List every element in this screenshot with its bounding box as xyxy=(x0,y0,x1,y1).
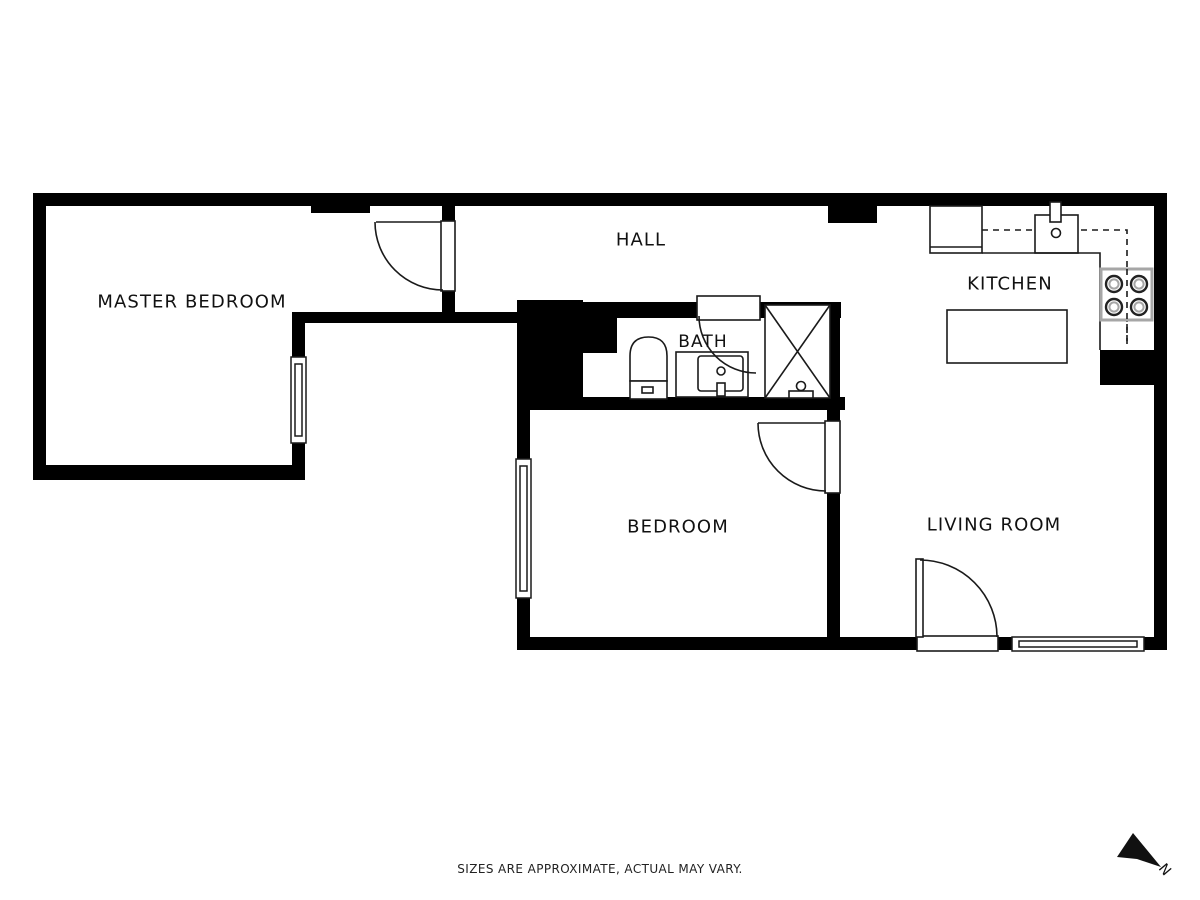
kitchen-island-icon xyxy=(947,310,1067,363)
wall-kitchen-living-block xyxy=(1100,350,1154,385)
room-label-living-room: LIVING ROOM xyxy=(927,515,1062,536)
shower-valve-bar xyxy=(789,391,813,398)
wall-pier-top-left xyxy=(311,193,370,213)
wall-top xyxy=(33,193,1167,206)
wall-lightwell-top xyxy=(292,312,517,323)
master-bedroom-door xyxy=(375,221,455,291)
wall-pier-hall-kitchen xyxy=(828,193,877,223)
bath-sink-handle xyxy=(717,383,725,396)
kitchen-faucet-icon xyxy=(1050,202,1061,222)
room-label-kitchen: KITCHEN xyxy=(967,274,1053,295)
door-jamb xyxy=(917,636,998,651)
fridge-icon xyxy=(930,206,982,253)
doors xyxy=(375,221,998,651)
door-swing-arc xyxy=(920,560,997,637)
room-label-master-bedroom: MASTER BEDROOM xyxy=(97,292,286,313)
door-jamb xyxy=(697,296,760,320)
north-arrow-icon xyxy=(1117,833,1161,867)
floor-plan-drawing: N xyxy=(0,0,1200,900)
bedroom-door xyxy=(758,421,840,493)
door-swing-arc xyxy=(758,423,826,491)
wall-shaft-block xyxy=(517,300,583,407)
door-leaf xyxy=(916,559,923,637)
door-jamb xyxy=(825,421,840,493)
living-room-window xyxy=(1012,637,1144,651)
walls xyxy=(33,193,1167,650)
door-swing-arc xyxy=(375,222,443,290)
wall-master-bottom xyxy=(33,465,305,480)
wall-right xyxy=(1154,193,1167,650)
room-label-bedroom: BEDROOM xyxy=(627,517,729,538)
shower-valve-knob xyxy=(797,382,806,391)
toilet-flush-handle xyxy=(642,387,653,393)
bedroom-window xyxy=(516,459,531,598)
disclaimer-text: SIZES ARE APPROXIMATE, ACTUAL MAY VARY. xyxy=(457,862,742,876)
floor-plan-page: N MASTER BEDROOM HALL KITCHEN BATH BEDRO… xyxy=(0,0,1200,900)
entry-door xyxy=(916,559,998,651)
master-bedroom-window xyxy=(291,357,306,443)
room-label-bath: BATH xyxy=(678,332,728,352)
door-jamb xyxy=(441,221,455,291)
room-label-hall: HALL xyxy=(616,230,666,251)
wall-bath-bottom xyxy=(517,397,845,410)
north-compass: N xyxy=(1117,833,1174,879)
wall-left xyxy=(33,193,46,480)
toilet-icon xyxy=(630,337,667,381)
